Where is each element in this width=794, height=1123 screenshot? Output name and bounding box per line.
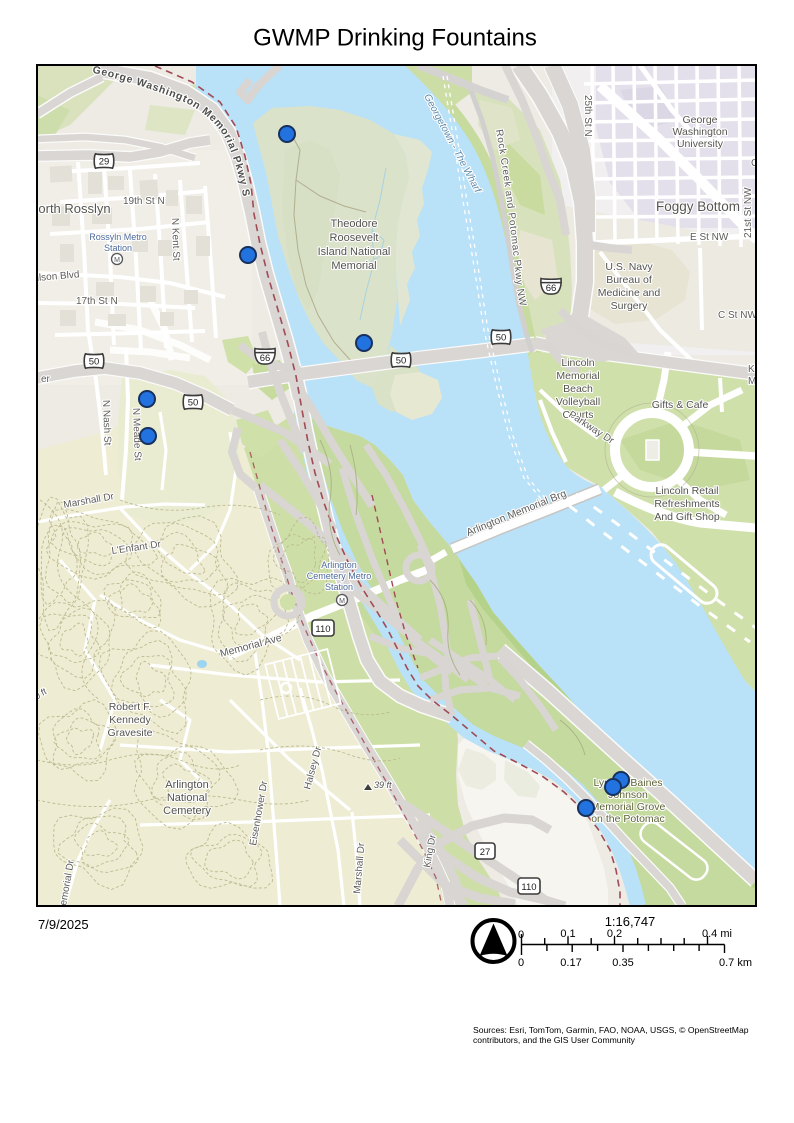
svg-text:0: 0 bbox=[518, 957, 524, 969]
svg-text:1:16,747: 1:16,747 bbox=[605, 914, 656, 929]
svg-text:0.1: 0.1 bbox=[560, 928, 575, 940]
svg-text:21st St NW: 21st St NW bbox=[743, 187, 754, 238]
svg-text:39 ft: 39 ft bbox=[374, 780, 392, 790]
svg-text:Memorial: Memorial bbox=[556, 370, 599, 382]
svg-text:7/9/2025: 7/9/2025 bbox=[38, 917, 89, 932]
svg-text:And Gift Shop: And Gift Shop bbox=[654, 511, 720, 523]
svg-text:Lincoln Retail: Lincoln Retail bbox=[655, 485, 718, 497]
svg-text:er: er bbox=[41, 374, 51, 385]
svg-text:29: 29 bbox=[99, 157, 110, 168]
svg-text:N Nash St: N Nash St bbox=[100, 400, 113, 446]
svg-text:110: 110 bbox=[521, 882, 536, 893]
svg-text:Gravesite: Gravesite bbox=[108, 727, 153, 739]
svg-text:50: 50 bbox=[188, 398, 199, 409]
svg-text:Lincoln: Lincoln bbox=[561, 357, 594, 369]
svg-text:N Kent St: N Kent St bbox=[169, 218, 181, 261]
svg-text:Bureau of: Bureau of bbox=[606, 274, 652, 286]
svg-text:Cemetery: Cemetery bbox=[163, 805, 211, 817]
svg-text:Sources: Esri, TomTom, Garm: Sources: Esri, TomTom, Garmin, FAO, NOAA… bbox=[473, 1025, 749, 1035]
svg-text:Station: Station bbox=[104, 243, 132, 253]
svg-text:Memorial: Memorial bbox=[331, 260, 376, 272]
svg-text:Theodore: Theodore bbox=[330, 218, 377, 230]
svg-text:Gifts & Cafe: Gifts & Cafe bbox=[652, 399, 709, 411]
svg-text:0.17: 0.17 bbox=[560, 957, 581, 969]
svg-text:North Rosslyn: North Rosslyn bbox=[29, 201, 111, 216]
svg-text:Cemetery Metro: Cemetery Metro bbox=[307, 571, 372, 581]
svg-text:M: M bbox=[114, 257, 120, 264]
svg-text:19th St N: 19th St N bbox=[123, 196, 165, 207]
svg-text:Rossyln Metro: Rossyln Metro bbox=[89, 232, 147, 242]
svg-text:Medicine and: Medicine and bbox=[598, 287, 661, 299]
svg-text:25th St N: 25th St N bbox=[582, 95, 593, 137]
svg-text:E St NW: E St NW bbox=[690, 232, 729, 243]
svg-text:50: 50 bbox=[396, 356, 407, 367]
svg-text:0.4 mi: 0.4 mi bbox=[702, 928, 732, 940]
svg-text:0.2: 0.2 bbox=[607, 928, 622, 940]
svg-text:Kennedy: Kennedy bbox=[109, 714, 151, 726]
svg-text:110: 110 bbox=[315, 624, 330, 635]
svg-text:50: 50 bbox=[496, 333, 507, 344]
svg-text:0.35: 0.35 bbox=[612, 957, 633, 969]
svg-text:U.S. Navy: U.S. Navy bbox=[605, 261, 653, 273]
svg-text:contributors, and the GIS User: contributors, and the GIS User Community bbox=[473, 1035, 636, 1045]
svg-text:on the Potomac: on the Potomac bbox=[591, 813, 665, 825]
svg-text:Refreshments: Refreshments bbox=[654, 498, 719, 510]
svg-text:Arlington: Arlington bbox=[321, 560, 357, 570]
svg-text:17th St N: 17th St N bbox=[76, 296, 118, 307]
svg-text:Station: Station bbox=[325, 582, 353, 592]
svg-text:0.7 km: 0.7 km bbox=[719, 957, 752, 969]
svg-text:GWMP Drinking Fountains: GWMP Drinking Fountains bbox=[253, 25, 537, 52]
svg-text:Washington: Washington bbox=[672, 126, 727, 138]
svg-text:George: George bbox=[682, 114, 717, 126]
svg-text:50: 50 bbox=[89, 357, 100, 368]
svg-text:Roosevelt: Roosevelt bbox=[330, 232, 379, 244]
svg-text:Surgery: Surgery bbox=[611, 300, 649, 312]
svg-text:0: 0 bbox=[518, 929, 524, 941]
svg-text:National: National bbox=[167, 792, 207, 804]
svg-text:University: University bbox=[677, 138, 724, 150]
svg-text:C St NW: C St NW bbox=[718, 310, 757, 321]
svg-text:66: 66 bbox=[546, 283, 557, 294]
svg-text:66: 66 bbox=[260, 353, 271, 364]
svg-text:27: 27 bbox=[480, 847, 491, 858]
svg-text:Island National: Island National bbox=[318, 246, 391, 258]
svg-text:Memorial Grove: Memorial Grove bbox=[591, 801, 666, 813]
svg-text:Beach: Beach bbox=[563, 383, 593, 395]
svg-text:Foggy Bottom: Foggy Bottom bbox=[656, 199, 740, 214]
svg-text:M: M bbox=[339, 598, 345, 605]
svg-text:Robert F.: Robert F. bbox=[109, 701, 152, 713]
svg-text:Volleyball: Volleyball bbox=[556, 396, 600, 408]
svg-text:Arlington: Arlington bbox=[165, 779, 208, 791]
